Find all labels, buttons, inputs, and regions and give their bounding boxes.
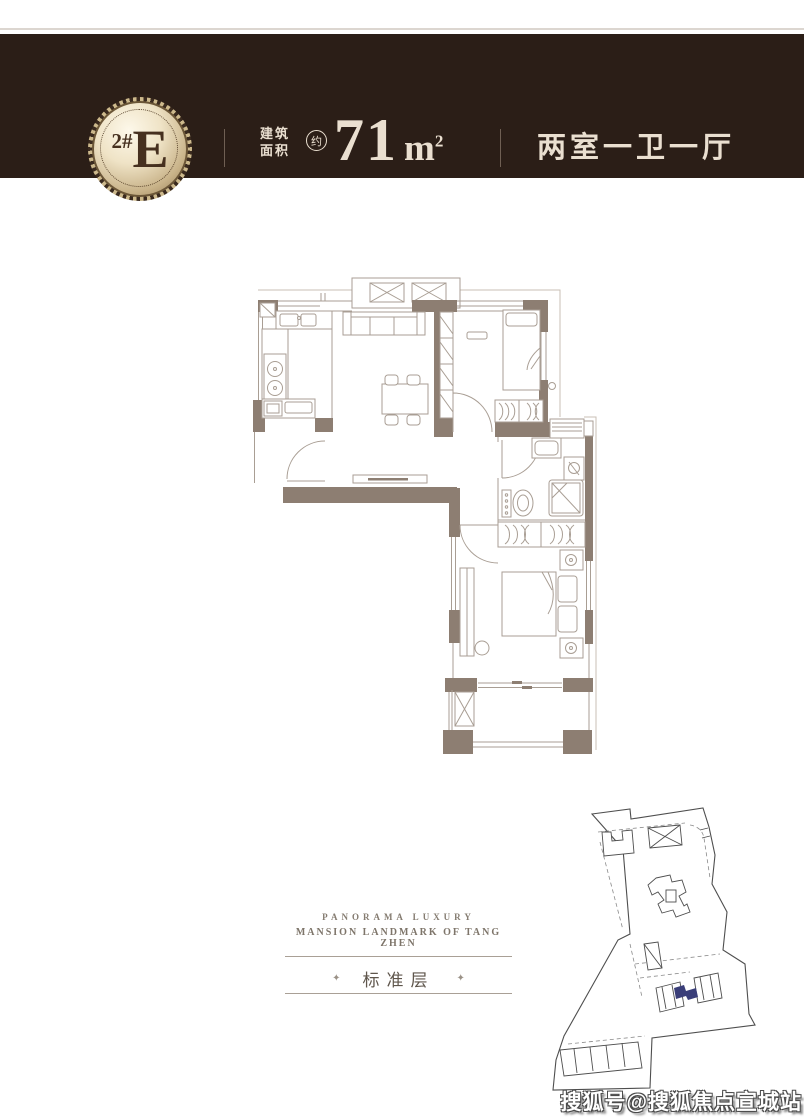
- bedroom2-closet: [498, 522, 585, 547]
- badge-unit-number: 2#: [111, 129, 132, 154]
- pillow-icon: [558, 576, 577, 602]
- floor-label-row: ✦ 标准层 ✦: [285, 966, 512, 991]
- chair-icon: [385, 375, 398, 385]
- watermark-text: 搜狐号@搜狐焦点宣城站: [561, 1086, 802, 1116]
- bedroom2-group: [460, 550, 583, 658]
- chair-icon: [407, 415, 420, 425]
- badge-text: 2# E: [88, 97, 192, 201]
- divider-rule-top: [285, 956, 512, 957]
- area-unit-superscript: 2: [435, 132, 444, 151]
- page-root: { "page": { "width": 804, "height": 1120…: [0, 0, 804, 1120]
- brand-subtitle: MANSION LANDMARK OF TANG ZHEN: [285, 927, 512, 949]
- area-value-group: 71 m2: [334, 106, 443, 175]
- floor-plan-drawing: [240, 250, 620, 770]
- site-plan-drawing: [540, 792, 764, 1097]
- badge-unit-letter: E: [132, 122, 168, 176]
- unit-badge: 2# E: [88, 97, 192, 201]
- ornament-star-icon: ✦: [332, 973, 340, 984]
- kitchen-sink-icon: [301, 314, 316, 326]
- shelf-icon: [467, 332, 487, 339]
- bedroom1-door-arc: [453, 393, 492, 432]
- header-divider-right: [500, 129, 501, 167]
- layout-text: 两室一卫一厅: [537, 124, 737, 166]
- pillow-icon: [506, 313, 537, 326]
- building-footprint: [694, 973, 722, 1003]
- area-label-line1: 建筑: [260, 125, 290, 142]
- chair-icon: [407, 375, 420, 385]
- floor-label: 标准层: [363, 966, 435, 991]
- entry-door-arc: [287, 441, 325, 481]
- header-band: 2# E 建筑 面积 约 71 m2 两室一卫一厅: [0, 34, 804, 178]
- top-hairline: [0, 28, 804, 30]
- area-label-line2: 面积: [260, 142, 290, 159]
- bedroom1-group: [467, 310, 543, 422]
- balcony-group: [452, 690, 474, 730]
- sliding-door-handle: [512, 681, 522, 684]
- dining-table-icon: [382, 384, 428, 414]
- kitchen-group: [260, 303, 332, 418]
- bathroom-group: [502, 438, 584, 517]
- hall-closet: [440, 312, 453, 418]
- area-label: 建筑 面积: [260, 125, 290, 159]
- sofa-icon: [343, 312, 425, 335]
- appliance-icon: [285, 402, 312, 413]
- pillow-icon: [558, 606, 577, 632]
- brand-title: PANORAMA LUXURY: [285, 912, 512, 922]
- wall-marker: [549, 383, 556, 390]
- kitchen-sink-icon: [280, 314, 298, 326]
- chair-icon: [385, 415, 398, 425]
- ornament-star-icon: ✦: [457, 973, 465, 984]
- living-dining-group: [343, 312, 428, 483]
- divider-rule-bottom: [285, 993, 512, 994]
- approx-circle: 约: [306, 130, 327, 151]
- bedroom2-door-arc: [460, 525, 498, 563]
- stool-icon: [475, 641, 489, 655]
- area-unit: m2: [404, 127, 443, 170]
- sliding-door-handle: [522, 686, 532, 689]
- header-divider-left: [224, 129, 225, 167]
- equipment-platform: [550, 419, 593, 438]
- approx-label: 约: [311, 133, 322, 149]
- area-value: 71: [334, 106, 398, 175]
